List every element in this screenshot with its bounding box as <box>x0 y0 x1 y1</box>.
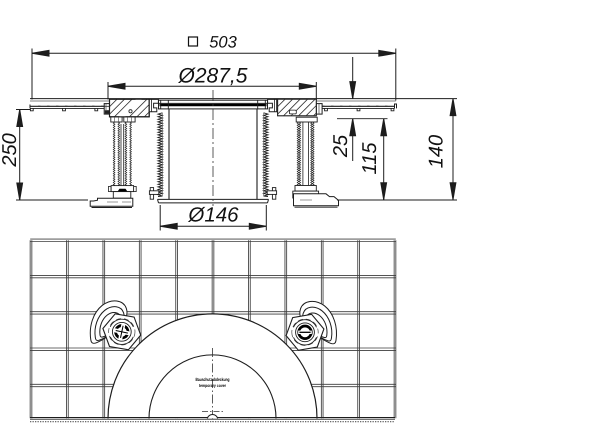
svg-text:250: 250 <box>0 133 21 167</box>
svg-text:temporary cover: temporary cover <box>199 383 226 388</box>
svg-text:503: 503 <box>209 34 237 52</box>
svg-text:Bauschutzabdeckung: Bauschutzabdeckung <box>196 377 230 382</box>
svg-text:115: 115 <box>359 142 381 175</box>
svg-text:Ø287,5: Ø287,5 <box>178 65 248 88</box>
svg-text:140: 140 <box>426 135 448 168</box>
svg-text:Ø146: Ø146 <box>187 204 239 227</box>
svg-text:25: 25 <box>330 134 352 158</box>
